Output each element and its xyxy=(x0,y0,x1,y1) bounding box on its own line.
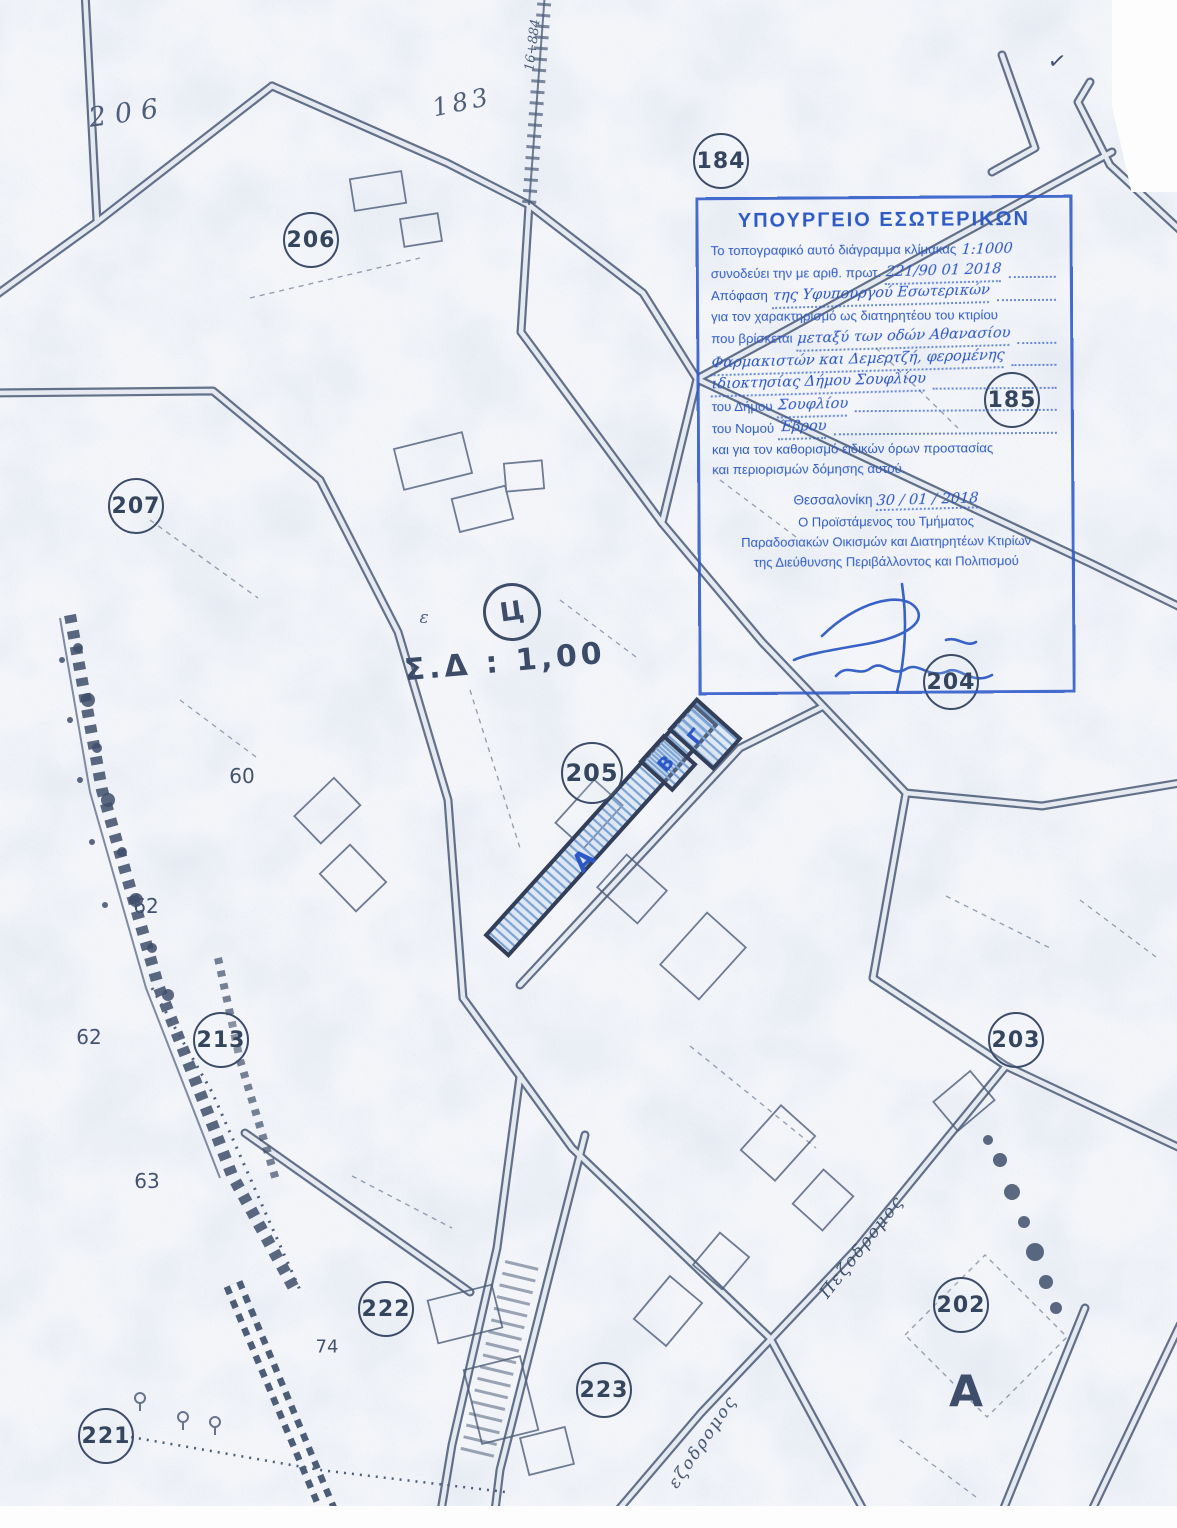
signoff-title-1: Ο Προϊστάμενος του Τμήματος xyxy=(712,510,1059,532)
stamp-text: Απόφαση xyxy=(711,286,768,307)
scan-margin-bottom xyxy=(0,1506,1177,1528)
stamp-text: συνοδεύει την με αριθ. πρωτ. xyxy=(711,263,882,285)
stamp-signoff: Ο Προϊστάμενος του Τμήματος Παραδοσιακών… xyxy=(712,510,1059,572)
parcel-number-62b: 62 xyxy=(76,1025,101,1049)
block-circle-222: 222 xyxy=(358,1281,414,1337)
dotted-rule xyxy=(834,431,1057,435)
zone-letter-A: Α xyxy=(949,1367,983,1418)
stamp-title: ΥΠΟΥΡΓΕΙΟ ΕΣΩΤΕΡΙΚΩΝ xyxy=(710,208,1057,233)
dotted-rule xyxy=(1012,364,1057,366)
block-number: 207 xyxy=(112,494,161,519)
block-circle-213: 213 xyxy=(193,1012,249,1068)
block-circle-202: 202 xyxy=(933,1277,989,1333)
stamp-handwriting: 1:1000 xyxy=(960,239,1013,261)
parcel-number-60: 60 xyxy=(229,764,254,788)
stamp-line-prefecture: του Νομού Έβρου xyxy=(712,415,1059,440)
block-number: 205 xyxy=(565,759,618,787)
stamp-line-protection: και για τον καθορισμό ειδικών όρων προστ… xyxy=(712,437,1059,460)
dotted-rule xyxy=(1018,341,1057,343)
block-number: 206 xyxy=(287,228,336,253)
stamp-line-protocol: συνοδεύει την με αριθ. πρωτ. 221/90 01 2… xyxy=(711,259,1058,284)
dotted-rule xyxy=(855,409,1057,412)
block-number: 203 xyxy=(992,1028,1041,1053)
dotted-rule xyxy=(933,386,1057,389)
parcel-number-74: 74 xyxy=(316,1337,339,1358)
stamp-text: Το τοπογραφικό αυτό διάγραμμα κλίμακας xyxy=(711,240,957,262)
block-circle-207: 207 xyxy=(108,478,164,534)
block-circle-223: 223 xyxy=(576,1362,632,1418)
block-number: 213 xyxy=(197,1028,246,1053)
signoff-title-3: της Διεύθυνσης Περιβάλλοντος και Πολιτισ… xyxy=(713,550,1060,572)
block-circle-184: 184 xyxy=(693,133,749,189)
stamp-text: και για τον καθορισμό ειδικών όρων προστ… xyxy=(712,438,993,460)
parcel-number-62: 62 xyxy=(133,894,158,918)
stamp-handwriting: Σουφλίου xyxy=(777,393,849,418)
block-number: 223 xyxy=(580,1378,629,1403)
block-number: 221 xyxy=(82,1424,131,1449)
signoff-title-2: Παραδοσιακών Οικισμών και Διατηρητέων Κτ… xyxy=(713,530,1060,552)
block-circle-221: 221 xyxy=(78,1408,134,1464)
dotted-rule xyxy=(997,298,1056,300)
ministry-stamp: ΥΠΟΥΡΓΕΙΟ ΕΣΩΤΕΡΙΚΩΝ Το τοπογραφικό αυτό… xyxy=(695,195,1075,696)
stamp-handwriting: Έβρου xyxy=(778,416,827,440)
stamp-line-scale: Το τοπογραφικό αυτό διάγραμμα κλίμακας 1… xyxy=(711,239,1058,262)
stamp-line-restrictions: και περιορισμών δόμησης αυτού. xyxy=(712,458,1059,481)
scanned-topographic-map: 206 184 207 185 204 205 213 203 202 221 … xyxy=(0,0,1177,1528)
block-circle-206: 206 xyxy=(283,212,339,268)
block-circle-205: 205 xyxy=(561,742,623,804)
check-mark: ✓ xyxy=(1046,48,1068,75)
stamp-date-handwriting: 30 / 01 / 2018 xyxy=(876,490,979,511)
stamp-text: που βρίσκεται xyxy=(711,329,792,350)
stamp-line-streets: Φαρμακιστών και Δεμερτζή, φερομένης xyxy=(711,347,1058,372)
block-number: 202 xyxy=(937,1293,986,1318)
stamp-line-ownership: ιδιοκτησίας Δήμου Σουφλίου xyxy=(711,370,1058,395)
stamp-line-location: που βρίσκεται μεταξύ των οδών Αθανασίου xyxy=(711,325,1058,350)
epsilon-mark: ε xyxy=(419,608,428,628)
stamp-text: του Δήμου xyxy=(712,396,773,417)
stamp-line-decision: Απόφαση της Υφυπουργού Εσωτερικών xyxy=(711,282,1058,307)
block-number: 222 xyxy=(362,1297,411,1322)
stamp-text: και περιορισμών δόμησης αυτού. xyxy=(712,459,905,481)
block-circle-203: 203 xyxy=(988,1012,1044,1068)
stamp-date-line: Θεσσαλονίκη 30 / 01 / 2018 xyxy=(712,490,1059,510)
dotted-rule xyxy=(1009,276,1056,278)
circled-symbol-glyph: Ц xyxy=(498,595,526,628)
stamp-line-municipality: του Δήμου Σουφλίου xyxy=(712,392,1059,417)
stamp-text: του Νομού xyxy=(712,419,774,440)
block-number: 184 xyxy=(697,149,746,174)
stamp-text: Θεσσαλονίκη xyxy=(793,492,872,508)
parcel-number-63: 63 xyxy=(134,1169,159,1193)
